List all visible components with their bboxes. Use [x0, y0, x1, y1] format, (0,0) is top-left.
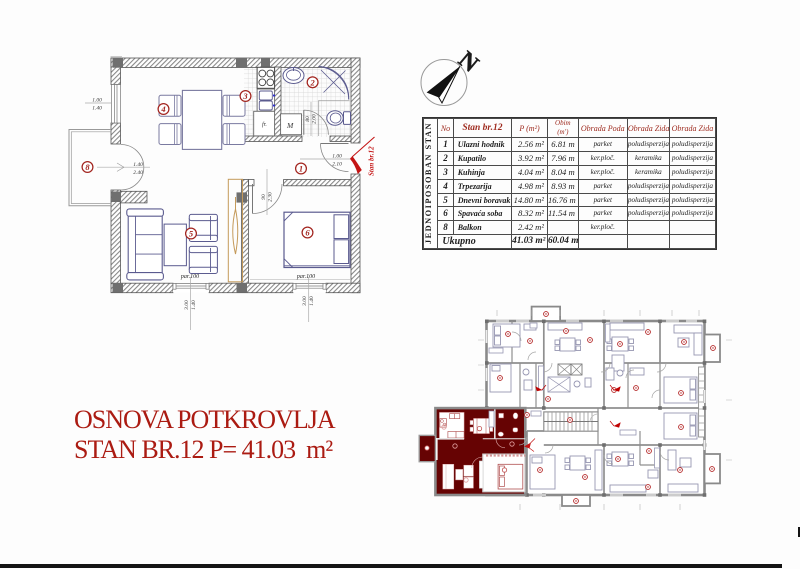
svg-text:4: 4: [160, 104, 165, 114]
svg-text:1.40: 1.40: [133, 161, 143, 168]
svg-text:N: N: [453, 47, 484, 78]
svg-text:3.00: 3.00: [302, 296, 308, 307]
svg-text:1.40: 1.40: [190, 300, 197, 310]
svg-text:2.00: 2.00: [312, 114, 318, 124]
svg-text:Stan br.12: Stan br.12: [368, 146, 376, 176]
svg-text:3.00: 3.00: [184, 300, 190, 311]
svg-text:80: 80: [305, 116, 311, 122]
svg-text:3: 3: [242, 91, 248, 101]
svg-text:1.40: 1.40: [92, 105, 102, 112]
svg-text:1.00: 1.00: [92, 98, 102, 104]
svg-text:2.30: 2.30: [268, 192, 274, 202]
svg-text:1: 1: [299, 164, 303, 174]
svg-text:1.40: 1.40: [308, 296, 315, 306]
svg-text:1.00: 1.00: [332, 154, 342, 160]
svg-text:M: M: [286, 121, 294, 130]
svg-text:2.40: 2.40: [133, 169, 143, 176]
svg-text:par.100: par.100: [296, 274, 315, 280]
svg-text:fr.: fr.: [262, 121, 267, 128]
svg-text:par.100: par.100: [180, 274, 199, 280]
svg-text:90: 90: [261, 194, 267, 200]
svg-text:2: 2: [309, 77, 315, 87]
svg-text:2.10: 2.10: [332, 162, 342, 168]
